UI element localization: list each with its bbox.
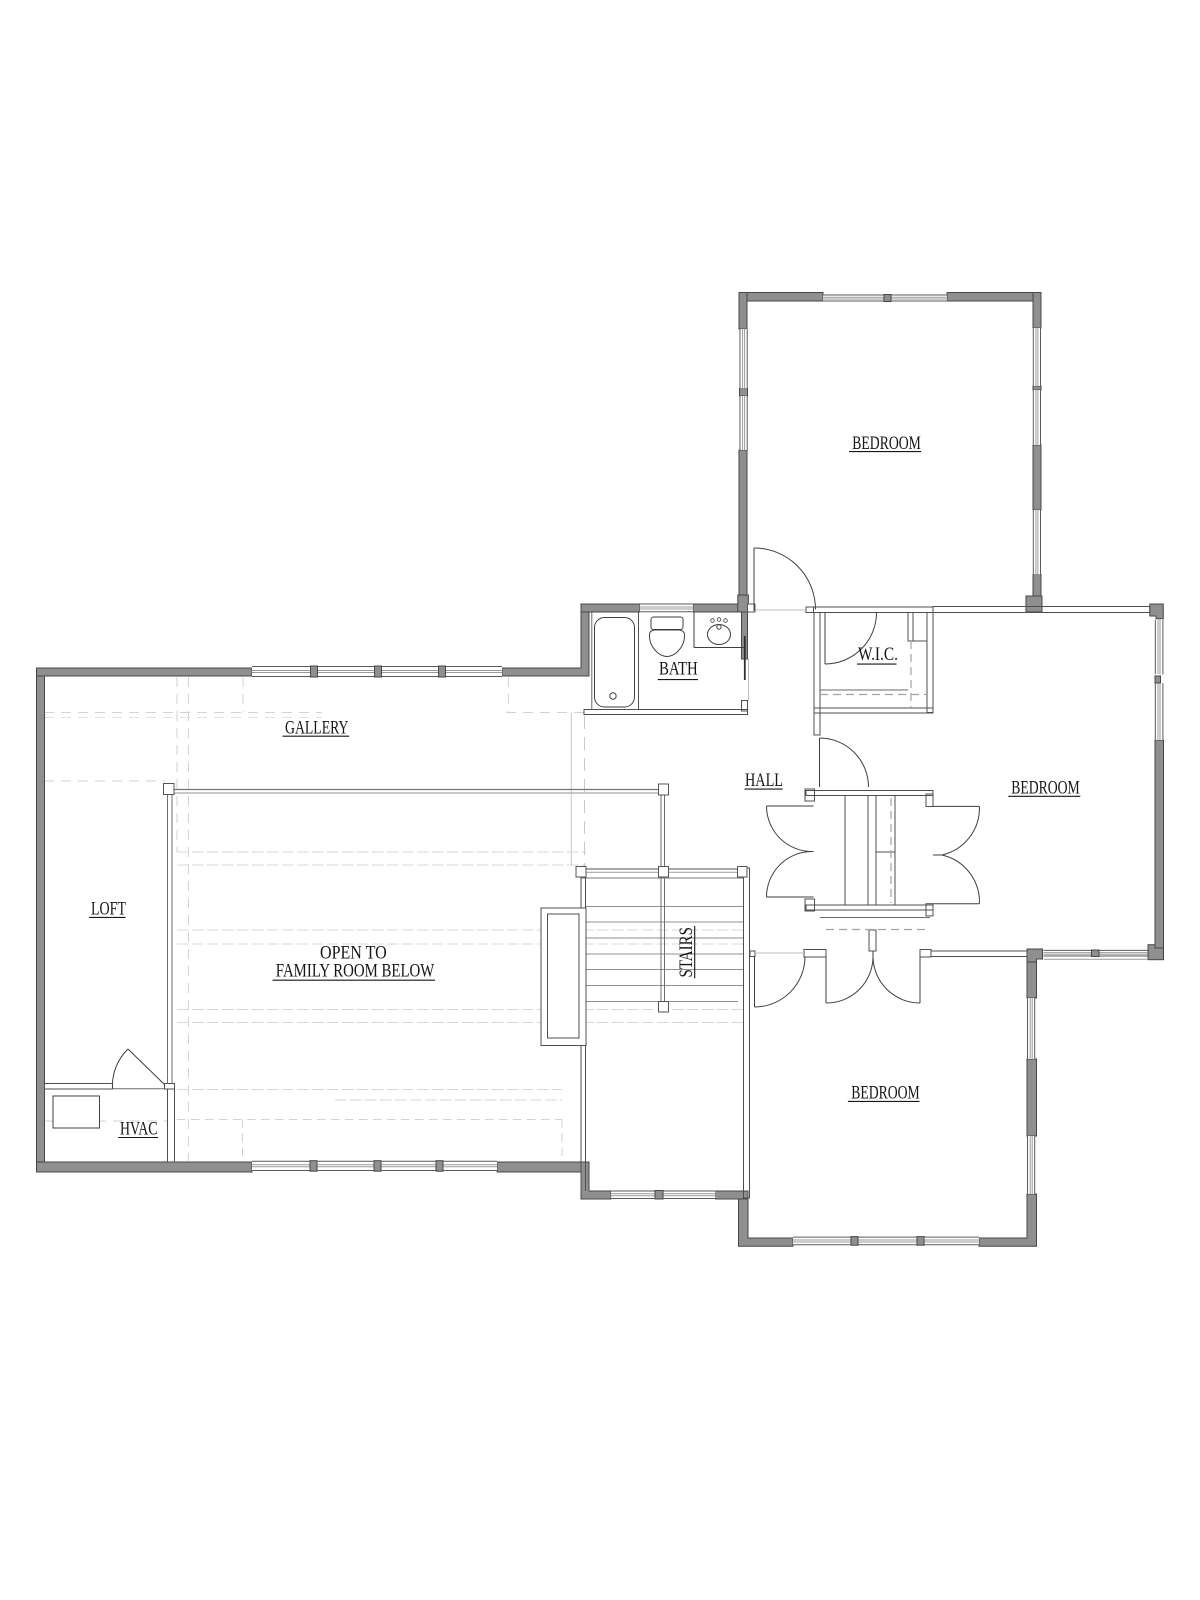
svg-text:BEDROOM: BEDROOM bbox=[1011, 777, 1080, 798]
svg-text:BATH: BATH bbox=[659, 659, 698, 680]
svg-text:FAMILY ROOM BELOW: FAMILY ROOM BELOW bbox=[276, 961, 435, 982]
svg-text:HALL: HALL bbox=[745, 770, 783, 791]
svg-text:W.I.C.: W.I.C. bbox=[858, 644, 898, 665]
svg-text:STAIRS: STAIRS bbox=[676, 927, 697, 978]
svg-text:BEDROOM: BEDROOM bbox=[851, 1083, 920, 1104]
svg-text:GALLERY: GALLERY bbox=[285, 717, 349, 738]
svg-text:HVAC: HVAC bbox=[120, 1119, 158, 1140]
svg-text:BEDROOM: BEDROOM bbox=[852, 433, 921, 454]
svg-text:LOFT: LOFT bbox=[91, 899, 126, 920]
